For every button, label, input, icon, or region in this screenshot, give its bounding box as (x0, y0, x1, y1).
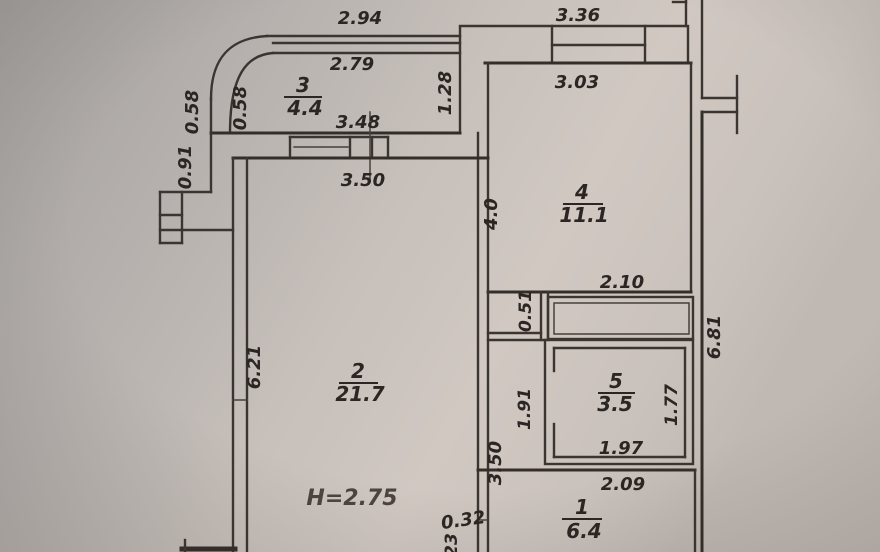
dim-2-10: 2.10 (600, 272, 644, 293)
floor-plan-drawing: 2.94 3.36 2.79 3 4.4 3.48 3.50 1.28 0.58… (0, 0, 880, 552)
dim-3-50-top: 3.50 (341, 170, 385, 191)
room4-number: 4 (574, 180, 589, 204)
dim-partial-23: 23 (442, 533, 462, 552)
dim-6-81: 6.81 (704, 315, 725, 359)
dim-2-94: 2.94 (338, 8, 382, 29)
room2-number: 2 (351, 359, 365, 383)
dim-3-48: 3.48 (336, 112, 380, 133)
dim-1-91: 1.91 (515, 388, 535, 430)
dim-2-79: 2.79 (330, 54, 374, 75)
dim-3-36: 3.36 (556, 5, 600, 26)
dim-0-58-outer: 0.58 (182, 90, 203, 134)
dim-3-50-left: 3.50 (485, 441, 506, 485)
dim-3-03: 3.03 (555, 72, 599, 93)
dim-1-28: 1.28 (435, 71, 456, 115)
dim-1-97: 1.97 (599, 438, 644, 459)
room1-number: 1 (575, 495, 589, 519)
room5-area: 3.5 (597, 392, 632, 416)
ceiling-height-note: H=2.75 (306, 486, 397, 511)
dim-0-51: 0.51 (516, 290, 536, 332)
room2-area: 21.7 (335, 382, 384, 406)
room4-area: 11.1 (559, 203, 608, 227)
room1-area: 6.4 (566, 519, 601, 543)
dim-6-21: 6.21 (244, 345, 265, 389)
room3-area: 4.4 (286, 96, 322, 120)
dim-0-58-inner: 0.58 (230, 86, 251, 130)
room3-number: 3 (296, 73, 310, 97)
room5-number: 5 (609, 369, 623, 393)
floor-plan-photo: 2.94 3.36 2.79 3 4.4 3.48 3.50 1.28 0.58… (0, 0, 880, 552)
dim-0-91: 0.91 (175, 145, 196, 189)
dim-2-09: 2.09 (601, 474, 645, 495)
dim-1-77: 1.77 (662, 384, 682, 426)
dim-4-0: 4.0 (481, 198, 502, 231)
